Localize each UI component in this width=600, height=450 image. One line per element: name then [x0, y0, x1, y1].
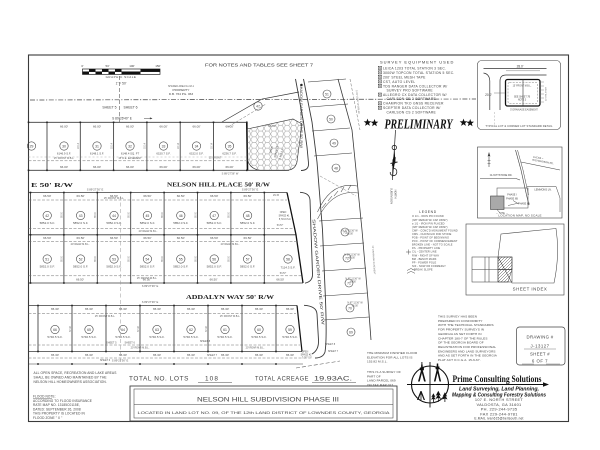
svg-text:20' REAR M.B.L.: 20' REAR M.B.L. [221, 243, 240, 246]
svg-text:S 89°26'40" E: S 89°26'40" E [112, 117, 132, 121]
svg-text:J-13127: J-13127 [530, 344, 549, 349]
svg-text:200' STEEL MESH TAPE: 200' STEEL MESH TAPE [383, 75, 426, 79]
svg-text:88.00: 88.00 [229, 211, 231, 217]
svg-text:LOCATED IN LAND LOT NO. 0: LOCATED IN LAND LOT NO. 09, OF THE 12th … [138, 410, 390, 415]
svg-text:66.00': 66.00' [225, 165, 234, 169]
svg-text:66.00': 66.00' [352, 305, 359, 308]
svg-text:C/L - CENTER LINE: C/L - CENTER LINE [412, 250, 437, 254]
svg-text:66.00': 66.00' [347, 233, 354, 236]
svg-text:5852.0 S.F.: 5852.0 S.F. [73, 264, 88, 268]
svg-text:FOR NOTES AND TABLES SEE: FOR NOTES AND TABLES SEE SHEET 7 [205, 63, 314, 68]
svg-text:PLAT ACT O.C.G.A. 15-6-67.: PLAT ACT O.C.G.A. 15-6-67. [438, 358, 481, 362]
svg-text:CST, AUTO LEVEL: CST, AUTO LEVEL [383, 80, 415, 84]
svg-text:5746.5 S.F.: 5746.5 S.F. [47, 335, 62, 339]
svg-text:65.30': 65.30' [85, 353, 94, 357]
svg-text:CHAMPION TKO GNSS RECEIVER: CHAMPION TKO GNSS RECEIVER [383, 102, 444, 106]
svg-text:65.30': 65.30' [221, 353, 230, 357]
svg-text:50': 50' [106, 64, 110, 68]
svg-text:SPACE #1: SPACE #1 [279, 215, 291, 218]
svg-text:48: 48 [246, 214, 250, 218]
svg-text:93.14: 93.14 [211, 142, 213, 148]
svg-text:ALL OPEN SPACE, RECREATION: ALL OPEN SPACE, RECREATION AND LAKE AREA… [34, 371, 118, 375]
svg-text:5852.0 S.F.: 5852.0 S.F. [240, 264, 255, 268]
svg-text:66.00': 66.00' [93, 165, 102, 169]
svg-text:S 89°27'36" E: S 89°27'36" E [87, 188, 104, 192]
svg-text:SHEET 6: SHEET 6 [125, 342, 136, 345]
svg-text:57: 57 [246, 257, 250, 261]
svg-text:15' FRONT M.B.L.: 15' FRONT M.B.L. [220, 315, 241, 318]
svg-text:35: 35 [228, 144, 232, 148]
svg-text:CMS - OLD/SOLID FND STONE: CMS - OLD/SOLID FND STONE [412, 232, 452, 236]
svg-text:29: 29 [30, 144, 34, 148]
svg-text:10' UTIL ESMT: 10' UTIL ESMT [546, 86, 548, 101]
svg-text:47: 47 [212, 214, 216, 218]
svg-text:6 OF 7: 6 OF 7 [532, 359, 548, 364]
svg-text:POC - POINT OF COMMENCEMENT: POC - POINT OF COMMENCEMENT [412, 239, 458, 243]
svg-text:5852.0 S.F.: 5852.0 S.F. [173, 221, 188, 225]
svg-text:5,716.9 S.F.: 5,716.9 S.F. [279, 219, 292, 221]
svg-text:51: 51 [45, 257, 49, 261]
svg-text:PHASE IIB: PHASE IIB [506, 198, 518, 201]
svg-text:5852.0 S.F.: 5852.0 S.F. [106, 264, 121, 268]
svg-text:6148.4 SQ. FT: 6148.4 SQ. FT [121, 152, 140, 156]
svg-text:5852.0 S.F.: 5852.0 S.F. [106, 221, 121, 225]
svg-text:45: 45 [146, 214, 150, 218]
svg-text:CMF - CONC'D MONUMENT FOUND: CMF - CONC'D MONUMENT FOUND [412, 228, 458, 232]
svg-text:65.30': 65.30' [187, 353, 196, 357]
svg-text:(3/8" REBAR W/ CAP #3097): (3/8" REBAR W/ CAP #3097) [412, 218, 448, 222]
svg-text:OPEN: OPEN [302, 352, 309, 354]
svg-text:87.96: 87.96 [138, 325, 140, 331]
svg-text:66.50': 66.50' [210, 277, 218, 281]
svg-text:SHEET 6: SHEET 6 [100, 359, 111, 362]
svg-text:15' FRONT M.B.L.: 15' FRONT M.B.L. [95, 315, 116, 318]
svg-text:88.00: 88.00 [95, 211, 97, 217]
svg-text:5852.0 S.F.: 5852.0 S.F. [173, 264, 188, 268]
svg-text:20' REAR M.B.L.: 20' REAR M.B.L. [139, 230, 158, 233]
svg-text:E 50' R/W: E 50' R/W [31, 182, 74, 189]
svg-text:65.30': 65.30' [255, 353, 264, 357]
svg-text:S 89°27'36" E: S 89°27'36" E [142, 284, 159, 288]
svg-text:6152.0 S.F.: 6152.0 S.F. [189, 152, 203, 156]
svg-text:SHEET 7: SHEET 7 [328, 350, 339, 353]
svg-text:88.00: 88.00 [195, 255, 197, 261]
svg-text:65.30': 65.30' [51, 307, 60, 311]
svg-text:20' REAR M.B.L.: 20' REAR M.B.L. [71, 243, 90, 246]
svg-text:3000W TOPCON TOTAL STATION 5 S: 3000W TOPCON TOTAL STATION 5 SEC. [383, 71, 455, 75]
svg-text:Prime Consulting Solutions: Prime Consulting Solutions [453, 374, 542, 385]
svg-text:33: 33 [162, 144, 166, 148]
svg-text:6236.7 S.F.: 6236.7 S.F. [222, 152, 236, 156]
svg-text:66.50': 66.50' [276, 277, 284, 281]
svg-text:FLOOD ZONE " X ": FLOOD ZONE " X " [33, 416, 62, 420]
svg-text:LEGEND: LEGEND [419, 210, 437, 214]
svg-text:66.00': 66.00' [159, 165, 168, 169]
svg-text:5746.5 S.F.: 5746.5 S.F. [81, 335, 96, 339]
svg-text:66.50': 66.50' [143, 236, 152, 240]
svg-text:66.00': 66.00' [60, 125, 69, 129]
svg-text:CARLSON CE 2 SOFTWARE: CARLSON CE 2 SOFTWARE [387, 97, 437, 101]
svg-text:44: 44 [112, 214, 116, 218]
svg-text:GRAPHIC SCALE: GRAPHIC SCALE [106, 75, 137, 79]
svg-text:66.00': 66.00' [225, 125, 234, 129]
svg-text:150': 150' [155, 64, 161, 68]
svg-text:NOTE 3: NOTE 3 [518, 100, 527, 102]
svg-text:53.57': 53.57' [277, 224, 284, 227]
svg-text:65.30': 65.30' [153, 307, 162, 311]
svg-text:SHEET 8: SHEET 8 [200, 340, 211, 343]
svg-text:29.15: 29.15 [273, 194, 280, 197]
svg-text:6150.7 S.F.: 6150.7 S.F. [156, 152, 170, 156]
svg-text:66.50': 66.50' [177, 194, 186, 198]
svg-text:66.00': 66.00' [126, 125, 135, 129]
svg-text:87.96: 87.96 [70, 325, 72, 331]
svg-text:65.30': 65.30' [286, 353, 295, 357]
svg-text:30: 30 [62, 144, 66, 148]
svg-text:32: 32 [128, 144, 132, 148]
svg-text:5852.0 S.F.: 5852.0 S.F. [140, 264, 155, 268]
svg-text:31: 31 [95, 144, 99, 148]
svg-text:SUBDIVISION: SUBDIVISION [390, 188, 393, 204]
svg-text:SURVEY EQUIPMENT USED: SURVEY EQUIPMENT USED [380, 60, 454, 65]
svg-text:66.50': 66.50' [76, 277, 84, 281]
svg-text:66.50': 66.50' [177, 236, 186, 240]
svg-text:42: 42 [45, 214, 49, 218]
svg-text:108: 108 [205, 376, 219, 383]
svg-text:88.00: 88.00 [62, 255, 64, 261]
svg-text:47: 47 [256, 104, 260, 108]
svg-text:PRELIMINARY: PRELIMINARY [385, 117, 454, 132]
svg-text:66.50': 66.50' [210, 236, 219, 240]
svg-text:66.50': 66.50' [143, 277, 151, 281]
svg-text:66.00': 66.00' [159, 125, 168, 129]
svg-text:7,087 S.F.: 7,087 S.F. [302, 358, 313, 360]
svg-text:66.50': 66.50' [43, 194, 52, 198]
svg-text:15' FRONT M.B.L.: 15' FRONT M.B.L. [513, 86, 532, 88]
svg-text:NELSON HILL SUBDIVISION PHA: NELSON HILL SUBDIVISION PHASE III [197, 397, 339, 404]
svg-text:65: 65 [87, 328, 91, 332]
svg-text:5852.0 S.F.: 5852.0 S.F. [73, 221, 88, 225]
svg-text:SHEET 8: SHEET 8 [325, 343, 336, 346]
svg-text:15' FRONT M.B.L.: 15' FRONT M.B.L. [104, 197, 125, 200]
svg-text:66.00': 66.00' [60, 165, 69, 169]
svg-text:CLYATTSTONE RD.: CLYATTSTONE RD. [490, 174, 513, 177]
svg-text:SHEET 6: SHEET 6 [124, 106, 138, 110]
svg-text:66.50': 66.50' [143, 194, 152, 198]
svg-text:56: 56 [212, 257, 216, 261]
svg-text:S 89°27'36" E: S 89°27'36" E [112, 358, 129, 362]
svg-text:66.00': 66.00' [350, 281, 357, 284]
svg-text:88.00: 88.00 [95, 255, 97, 261]
svg-text:- BREAK SLOPE: - BREAK SLOPE [412, 267, 433, 271]
svg-text:SPACE #2: SPACE #2 [301, 354, 313, 357]
svg-text:5852.0 S.F.: 5852.0 S.F. [40, 264, 55, 268]
svg-text:OPEN: OPEN [280, 212, 287, 214]
svg-text:49: 49 [332, 141, 336, 145]
svg-text:88.00: 88.00 [195, 211, 197, 217]
svg-text:TOTAL ACREAGE: TOTAL ACREAGE [255, 376, 309, 383]
svg-text:SHALL BE OWNED AND MAINTAI: SHALL BE OWNED AND MAINTAINED BY THE [34, 376, 108, 380]
svg-text:5' DRAINAGE EASEMENT: 5' DRAINAGE EASEMENT [510, 108, 538, 111]
svg-text:46: 46 [179, 214, 183, 218]
svg-text:88.00: 88.00 [229, 255, 231, 261]
svg-text:20' REAR M.B.L.: 20' REAR M.B.L. [131, 347, 150, 350]
svg-text:SHEET 7: SHEET 7 [207, 354, 218, 357]
svg-text:● 1/1 - IRON PIN PLACED: ● 1/1 - IRON PIN PLACED [412, 221, 445, 225]
svg-text:SHEET 5: SHEET 5 [106, 342, 117, 345]
svg-text:DRAWING #: DRAWING # [527, 335, 554, 340]
svg-text:15' D.E. EASEMENT: 15' D.E. EASEMENT [118, 157, 142, 160]
svg-text:20.0': 20.0' [485, 93, 492, 97]
svg-text:50: 50 [329, 117, 333, 121]
svg-text:66.00': 66.00' [93, 125, 102, 129]
svg-text:SURVEY PRO SOFTWARE: SURVEY PRO SOFTWARE [387, 89, 434, 93]
svg-text:66.50': 66.50' [77, 236, 86, 240]
svg-text:48: 48 [334, 166, 338, 170]
svg-text:BM - BENCH MARK: BM - BENCH MARK [412, 257, 437, 261]
svg-text:S 89°27'36" W: S 89°27'36" W [222, 172, 239, 176]
svg-text:5852.0 S.F.: 5852.0 S.F. [207, 221, 222, 225]
svg-text:PHASE IIA: PHASE IIA [518, 203, 530, 206]
svg-text:(3/8" REBAR W/ CAP #3097): (3/8" REBAR W/ CAP #3097) [412, 225, 448, 229]
svg-text:15' FRONT M.B.L.: 15' FRONT M.B.L. [54, 157, 75, 160]
svg-text:S 89°27'36" E: S 89°27'36" E [242, 188, 259, 192]
svg-text:88.00: 88.00 [129, 211, 131, 217]
svg-text:NELSON HILL HOMEOWNERS ASSO: NELSON HILL HOMEOWNERS ASSOCIATION. [34, 380, 107, 384]
svg-text:55: 55 [179, 257, 183, 261]
svg-text:88.00: 88.00 [62, 211, 64, 217]
svg-text:66.00': 66.00' [192, 125, 201, 129]
svg-text:66: 66 [53, 328, 57, 332]
svg-text:POB - POINT OF BEGINNING: POB - POINT OF BEGINNING [412, 236, 449, 240]
svg-text:65.30': 65.30' [119, 353, 128, 357]
svg-text:7114.3 S.F.: 7114.3 S.F. [281, 266, 296, 270]
svg-text:N/F - NOW OR FORMERLY: N/F - NOW OR FORMERLY [412, 264, 446, 268]
svg-text:87.96: 87.96 [206, 325, 208, 331]
svg-text:PHASE I: PHASE I [507, 194, 517, 197]
svg-text:65.30': 65.30' [286, 307, 295, 311]
svg-text:5746.5 S.F.: 5746.5 S.F. [183, 335, 198, 339]
svg-text:5852.0 S.F.: 5852.0 S.F. [40, 221, 55, 225]
svg-text:61: 61 [223, 328, 227, 332]
svg-text:28.0': 28.0' [517, 65, 524, 69]
svg-text:PROPERTY: PROPERTY [173, 88, 190, 92]
svg-text:66.50': 66.50' [43, 236, 52, 240]
svg-text:66.00': 66.00' [126, 165, 135, 169]
svg-text:43: 43 [79, 214, 83, 218]
svg-text:65.30': 65.30' [153, 353, 162, 357]
svg-text:5746.5 S.F.: 5746.5 S.F. [251, 335, 266, 339]
svg-text:58: 58 [286, 257, 290, 261]
svg-text:88.00: 88.00 [162, 255, 164, 261]
svg-text:66.00': 66.00' [192, 165, 201, 169]
svg-text:CARLSON CS 2 SOFTWARE: CARLSON CS 2 SOFTWARE [387, 110, 437, 114]
svg-text:65.30': 65.30' [85, 307, 94, 311]
svg-text:SHEET 5: SHEET 5 [102, 106, 116, 110]
svg-text:NORTH: NORTH [394, 190, 397, 199]
svg-text:65.30': 65.30' [221, 307, 230, 311]
svg-text:LEICA 1203 TOTAL STATION 3 SEC: LEICA 1203 TOTAL STATION 3 SEC. [383, 66, 446, 70]
svg-text:20' REAR M.B.L.: 20' REAR M.B.L. [246, 347, 265, 350]
svg-text:53.57': 53.57' [280, 272, 287, 275]
svg-text:SEE SHEET 7B: SEE SHEET 7B [514, 97, 531, 99]
svg-text:88.00: 88.00 [162, 211, 164, 217]
svg-text:34: 34 [195, 144, 199, 148]
svg-text:62: 62 [189, 328, 193, 332]
svg-text:66.50': 66.50' [210, 194, 219, 198]
svg-text:5746.5 S.F.: 5746.5 S.F. [282, 335, 297, 339]
svg-text:69: 69 [349, 330, 353, 334]
svg-text:R/W - RIGHT OF WAY: R/W - RIGHT OF WAY [412, 253, 440, 257]
svg-text:SHEET INDEX: SHEET INDEX [513, 287, 548, 292]
svg-text:52: 52 [79, 257, 83, 261]
svg-text:65.30': 65.30' [51, 353, 60, 357]
svg-text:93.14: 93.14 [78, 142, 80, 148]
svg-text:PP - POWER POLE: PP - POWER POLE [412, 260, 436, 264]
svg-text:66.50': 66.50' [77, 194, 86, 198]
svg-text:5746.5 S.F.: 5746.5 S.F. [115, 335, 130, 339]
svg-text:5852.0 S.F.: 5852.0 S.F. [240, 221, 255, 225]
svg-text:BROKEN LINE - NOT TO SCALE: BROKEN LINE - NOT TO SCALE [412, 243, 453, 247]
svg-text:LEMMONS LN.: LEMMONS LN. [534, 189, 552, 192]
svg-text:66.50': 66.50' [244, 236, 253, 240]
svg-text:60: 60 [257, 328, 261, 332]
svg-text:63: 63 [155, 328, 159, 332]
svg-text:53: 53 [112, 257, 116, 261]
svg-text:SHADOW GARDEN DRIVE 50' R/W: SHADOW GARDEN DRIVE 50' R/W [299, 84, 303, 148]
svg-text:5746.5 S.F.: 5746.5 S.F. [149, 335, 164, 339]
svg-text:93.14: 93.14 [145, 142, 147, 148]
svg-text:5852.0 S.F.: 5852.0 S.F. [140, 221, 155, 225]
svg-text:P/L - PROPERTY LINE: P/L - PROPERTY LINE [412, 246, 440, 250]
svg-text:15' FRONT: 15' FRONT [209, 157, 222, 160]
svg-text:59: 59 [288, 328, 292, 332]
svg-text:65.30': 65.30' [187, 307, 196, 311]
svg-text:88.00: 88.00 [129, 255, 131, 261]
svg-text:ADDALYN WAY 50' R/W: ADDALYN WAY 50' R/W [186, 294, 275, 301]
svg-text:LOCATION MAP, NO SCALE: LOCATION MAP, NO SCALE [498, 214, 541, 218]
svg-text:100': 100' [129, 64, 135, 68]
svg-text:E.MAIL ivan615@bellsouth.net: E.MAIL ivan615@bellsouth.net [474, 416, 523, 420]
svg-text:19.93AC.: 19.93AC. [314, 376, 352, 383]
svg-text:O 1/1 - IRON PIN FOUND: O 1/1 - IRON PIN FOUND [412, 214, 444, 218]
svg-text:D.B. 764 PG. 063: D.B. 764 PG. 063 [169, 92, 194, 96]
svg-text:1" = 50': 1" = 50' [116, 82, 127, 86]
svg-text:SHEET #: SHEET # [530, 352, 550, 357]
svg-text:51: 51 [325, 92, 329, 96]
svg-text:66.50': 66.50' [110, 236, 119, 240]
svg-text:TYPICAL LOT & CORNER LOT: TYPICAL LOT & CORNER LOT STANDARD DETAIL [485, 124, 553, 128]
svg-text:5746.5 S.F.: 5746.5 S.F. [217, 335, 232, 339]
svg-text:54: 54 [146, 257, 150, 261]
svg-text:64: 64 [121, 328, 125, 332]
svg-text:153.82 M.S.L.: 153.82 M.S.L. [367, 360, 388, 364]
svg-text:66.00': 66.00' [349, 257, 356, 260]
svg-text:6146.9 S.F.: 6146.9 S.F. [57, 152, 71, 156]
svg-text:93.14: 93.14 [111, 142, 113, 148]
svg-text:5852.0 S.F.: 5852.0 S.F. [207, 264, 222, 268]
svg-text:S 89°27'36" E: S 89°27'36" E [142, 300, 159, 304]
svg-text:6148.1 S.F.: 6148.1 S.F. [90, 152, 104, 156]
svg-text:66.50': 66.50' [244, 194, 253, 198]
svg-text:93.14: 93.14 [178, 142, 180, 148]
svg-text:65.30': 65.30' [255, 307, 264, 311]
svg-text:65.30': 65.30' [119, 307, 128, 311]
svg-text:TOTAL NO. LOTS: TOTAL NO. LOTS [129, 376, 189, 383]
